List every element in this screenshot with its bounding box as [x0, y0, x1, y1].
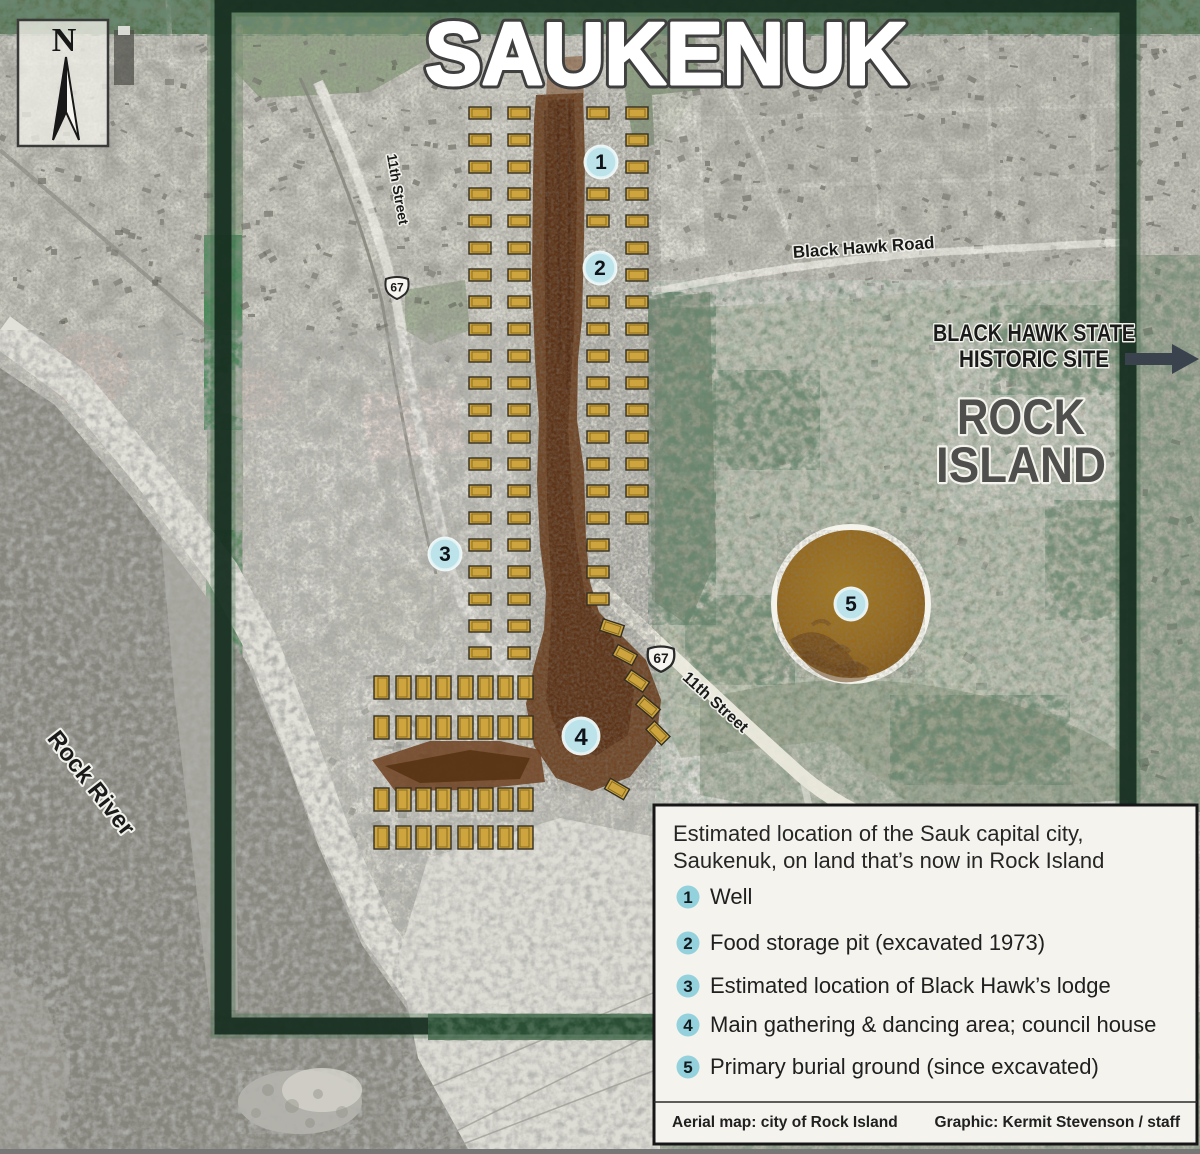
- svg-text:2: 2: [683, 934, 692, 953]
- svg-text:5: 5: [845, 593, 857, 616]
- svg-text:1: 1: [595, 151, 607, 174]
- svg-text:4: 4: [574, 724, 588, 751]
- svg-text:67: 67: [390, 281, 404, 295]
- svg-text:SAUKENUK: SAUKENUK: [425, 4, 907, 103]
- svg-text:Estimated location of Black Ha: Estimated location of Black Hawk’s lodge: [710, 973, 1111, 998]
- svg-text:Saukenuk, on land that’s now i: Saukenuk, on land that’s now in Rock Isl…: [673, 848, 1104, 873]
- svg-text:2: 2: [594, 257, 606, 280]
- svg-text:Primary burial ground (since e: Primary burial ground (since excavated): [710, 1054, 1099, 1079]
- svg-text:4: 4: [683, 1016, 693, 1035]
- svg-text:1: 1: [683, 888, 692, 907]
- svg-text:Food storage pit (excavated 19: Food storage pit (excavated 1973): [710, 930, 1045, 955]
- svg-text:HISTORIC SITE: HISTORIC SITE: [959, 346, 1109, 373]
- svg-text:BLACK HAWK STATE: BLACK HAWK STATE: [933, 320, 1135, 347]
- svg-text:Main gathering & dancing area;: Main gathering & dancing area; council h…: [710, 1012, 1156, 1037]
- svg-text:ISLAND: ISLAND: [936, 437, 1106, 493]
- svg-text:Estimated location of the Sauk: Estimated location of the Sauk capital c…: [673, 821, 1083, 846]
- svg-text:67: 67: [653, 651, 669, 666]
- svg-text:N: N: [52, 22, 77, 59]
- svg-text:Graphic: Kermit Stevenson / st: Graphic: Kermit Stevenson / staff: [935, 1114, 1181, 1131]
- svg-text:5: 5: [683, 1058, 692, 1077]
- svg-text:3: 3: [683, 977, 692, 996]
- svg-text:3: 3: [439, 543, 451, 566]
- svg-text:Aerial map: city of Rock Islan: Aerial map: city of Rock Island: [672, 1114, 898, 1131]
- svg-text:Well: Well: [710, 884, 752, 909]
